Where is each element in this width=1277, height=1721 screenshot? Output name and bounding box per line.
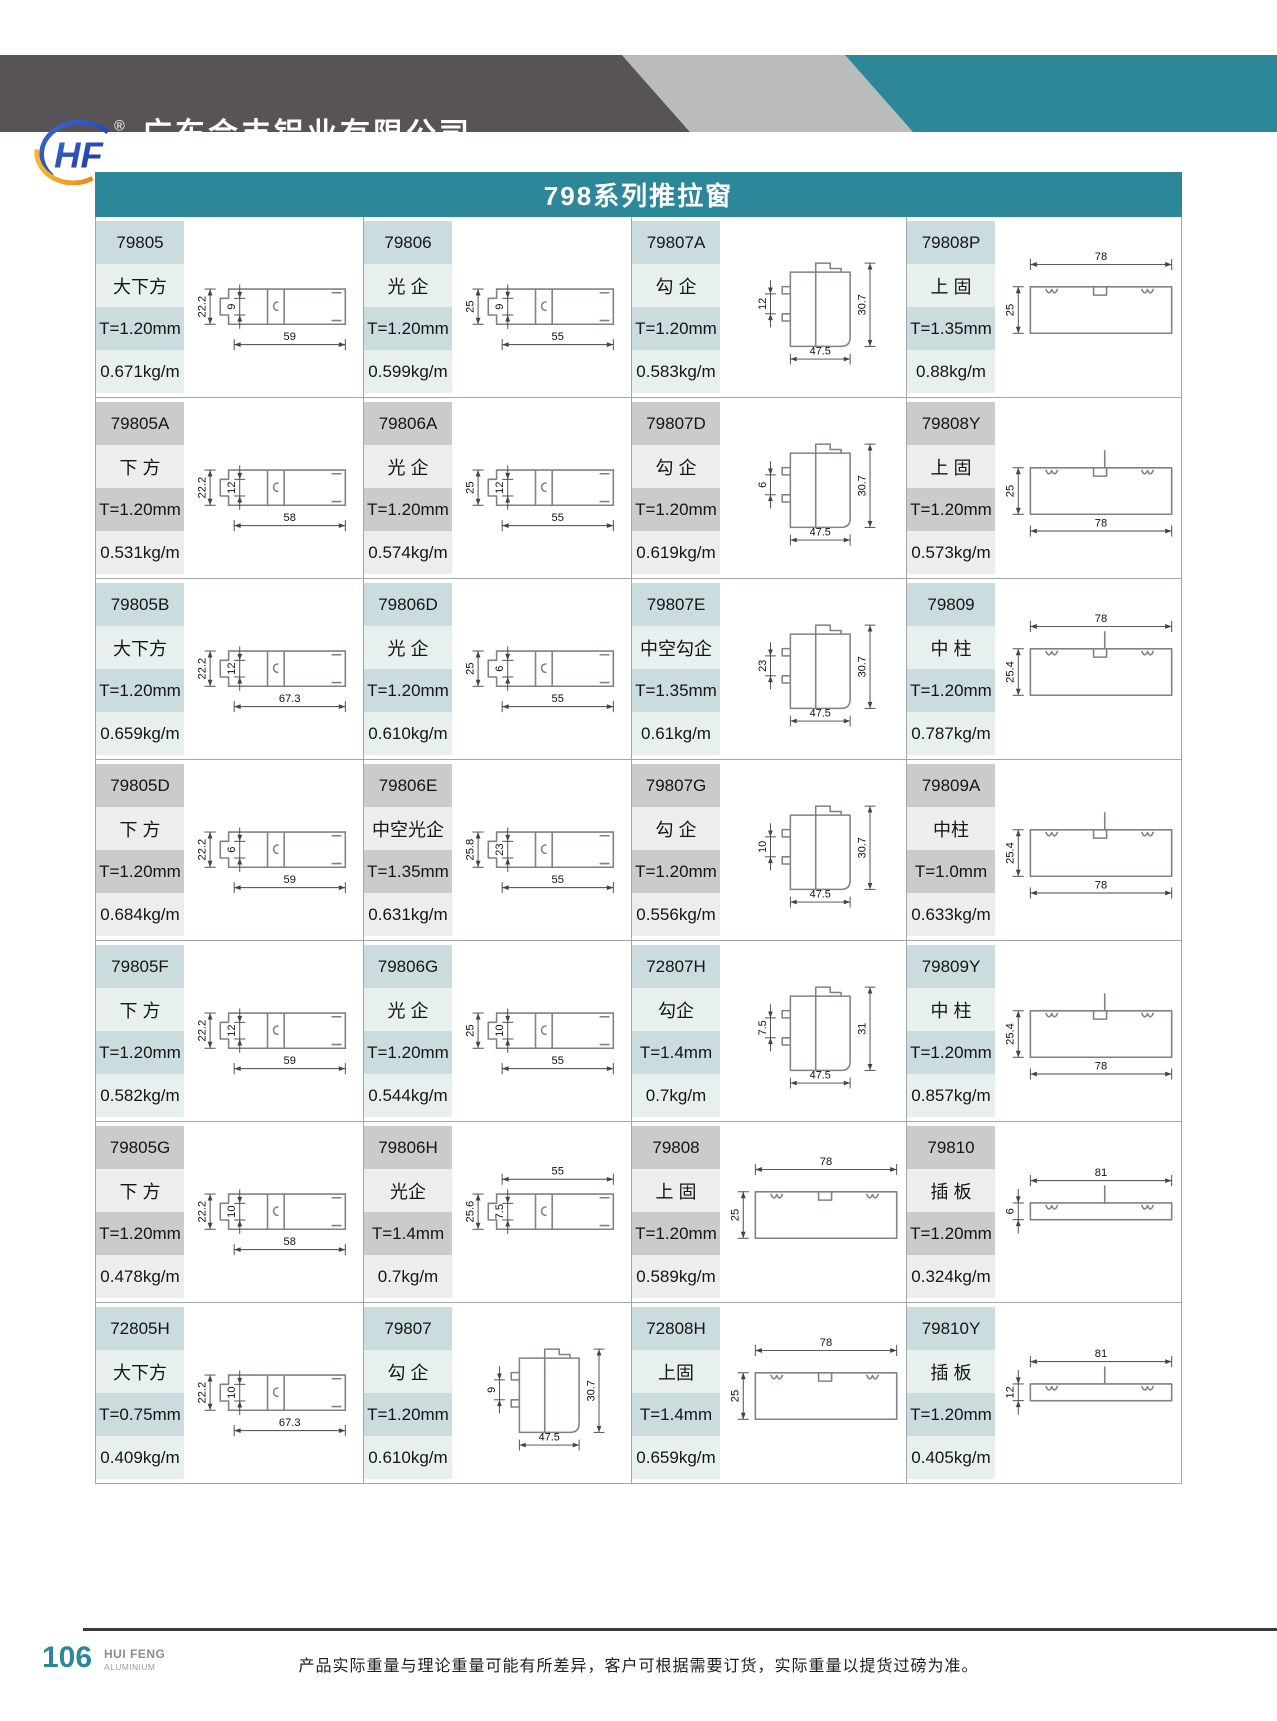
svg-text:12: 12 [226,482,238,494]
product-code: 79810 [907,1126,995,1169]
product-code: 79805B [96,583,184,626]
svg-text:30.7: 30.7 [585,1381,597,1402]
product-thickness: T=1.20mm [96,307,184,350]
product-label-stack: 79807A 勾 企 T=1.20mm 0.583kg/m [632,217,720,397]
svg-text:7.5: 7.5 [494,1204,506,1219]
company-name-cn: 广东会丰铝业有限公司 [142,118,472,152]
product-label-stack: 79805A 下 方 T=1.20mm 0.531kg/m [96,398,184,578]
product-name: 勾 企 [632,264,720,307]
product-cell: 72807H 勾企 T=1.4mm 0.7kg/m 7.53147.5 [632,941,907,1122]
svg-text:58: 58 [283,512,295,524]
svg-text:55: 55 [551,874,563,886]
svg-text:6: 6 [1005,1208,1017,1214]
profile-drawing: 7825 [995,398,1181,578]
product-code: 79808P [907,221,995,264]
product-cell: 79809 中 柱 T=1.20mm 0.787kg/m 7825.4 [907,579,1181,760]
product-name: 勾 企 [632,445,720,488]
profile-drawing: 251255 [452,398,631,578]
profile-drawing: 7825.4 [995,941,1181,1121]
product-name: 光 企 [364,988,452,1031]
product-code: 79807E [632,583,720,626]
product-name: 下 方 [96,445,184,488]
product-code: 79806 [364,221,452,264]
product-label-stack: 79808 上 固 T=1.20mm 0.589kg/m [632,1122,720,1302]
svg-text:25: 25 [730,1209,742,1221]
product-cell: 79806D 光 企 T=1.20mm 0.610kg/m 25655 [364,579,632,760]
product-weight: 0.478kg/m [96,1255,184,1298]
product-code: 79809A [907,764,995,807]
product-thickness: T=0.75mm [96,1393,184,1436]
product-label-stack: 79806H 光企 T=1.4mm 0.7kg/m [364,1122,452,1302]
svg-text:25: 25 [1005,304,1017,316]
product-name: 勾企 [632,988,720,1031]
svg-text:47.5: 47.5 [538,1432,559,1444]
product-weight: 0.61kg/m [632,712,720,755]
header-band-teal-segment [845,55,1277,132]
product-weight: 0.7kg/m [632,1074,720,1117]
product-thickness: T=1.4mm [632,1393,720,1436]
product-thickness: T=1.20mm [907,1393,995,1436]
product-weight: 0.88kg/m [907,350,995,393]
svg-text:7.5: 7.5 [757,1021,769,1036]
svg-text:22.2: 22.2 [196,477,208,499]
profile-drawing: 22.2959 [184,217,363,397]
product-name: 插 板 [907,1169,995,1212]
svg-text:59: 59 [283,874,295,886]
profile-cross-section-drawing: 22.21259 [186,976,362,1085]
svg-text:22.2: 22.2 [196,1020,208,1042]
product-cell: 79805 大下方 T=1.20mm 0.671kg/m 22.2959 [96,217,364,398]
profile-cross-section-drawing: 630.747.5 [727,426,899,549]
svg-text:78: 78 [820,1337,832,1349]
product-cell: 79805D 下 方 T=1.20mm 0.684kg/m 22.2659 [96,760,364,941]
svg-text:58: 58 [283,1236,295,1248]
product-name: 上固 [632,1350,720,1393]
product-code: 72808H [632,1307,720,1350]
product-label-stack: 79805B 大下方 T=1.20mm 0.659kg/m [96,579,184,759]
product-label-stack: 79806 光 企 T=1.20mm 0.599kg/m [364,217,452,397]
profile-cross-section-drawing: 22.21258 [186,433,362,542]
product-weight: 0.544kg/m [364,1074,452,1117]
product-label-stack: 79810 插 板 T=1.20mm 0.324kg/m [907,1122,995,1302]
product-code: 79805A [96,402,184,445]
product-code: 79806D [364,583,452,626]
svg-text:55: 55 [551,1055,563,1067]
product-label-stack: 79807G 勾 企 T=1.20mm 0.556kg/m [632,760,720,940]
product-thickness: T=1.20mm [907,669,995,712]
profile-drawing: 25.82355 [452,760,631,940]
svg-text:78: 78 [1095,251,1107,263]
profile-cross-section-drawing: 1030.747.5 [727,788,899,911]
profile-drawing: 816 [995,1122,1181,1302]
svg-text:78: 78 [1095,879,1107,891]
product-code: 79806H [364,1126,452,1169]
product-thickness: T=1.20mm [96,850,184,893]
svg-text:25: 25 [464,301,476,313]
product-code: 79805F [96,945,184,988]
company-name-block: 广东会丰铝业有限公司 GUANGDONG HUIFENG ALUMINIUM.,… [142,118,472,170]
svg-text:55: 55 [551,512,563,524]
product-cell: 79806G 光 企 T=1.20mm 0.544kg/m 251055 [364,941,632,1122]
svg-text:81: 81 [1095,1348,1107,1360]
product-code: 72807H [632,945,720,988]
product-name: 插 板 [907,1350,995,1393]
product-thickness: T=1.20mm [96,1212,184,1255]
product-label-stack: 79807 勾 企 T=1.20mm 0.610kg/m [364,1303,452,1483]
svg-text:81: 81 [1095,1167,1107,1179]
product-thickness: T=1.0mm [907,850,995,893]
product-thickness: T=1.35mm [907,307,995,350]
product-thickness: T=1.4mm [632,1031,720,1074]
svg-text:10: 10 [226,1387,238,1399]
product-cell: 79806H 光企 T=1.4mm 0.7kg/m 25.67.555 [364,1122,632,1303]
product-code: 79809Y [907,945,995,988]
profile-cross-section-drawing: 7.53147.5 [727,969,899,1092]
svg-text:67.3: 67.3 [278,1417,300,1429]
svg-text:25: 25 [464,482,476,494]
profile-drawing: 25955 [452,217,631,397]
profile-drawing: 25655 [452,579,631,759]
profile-cross-section-drawing: 7825.4 [995,787,1181,913]
svg-text:25: 25 [730,1390,742,1402]
profile-drawing: 22.21267.3 [184,579,363,759]
product-label-stack: 79807D 勾 企 T=1.20mm 0.619kg/m [632,398,720,578]
product-thickness: T=1.20mm [364,307,452,350]
product-name: 大下方 [96,1350,184,1393]
svg-text:59: 59 [283,1055,295,1067]
product-name: 光 企 [364,264,452,307]
profile-cross-section-drawing: 25.67.555 [454,1157,630,1266]
svg-text:12: 12 [226,663,238,675]
svg-text:78: 78 [820,1156,832,1168]
product-name: 光企 [364,1169,452,1212]
product-label-stack: 79806E 中空光企 T=1.35mm 0.631kg/m [364,760,452,940]
product-cell: 79807A 勾 企 T=1.20mm 0.583kg/m 1230.747.5 [632,217,907,398]
product-label-stack: 79805F 下 方 T=1.20mm 0.582kg/m [96,941,184,1121]
product-thickness: T=1.20mm [907,488,995,531]
svg-text:30.7: 30.7 [857,476,869,497]
product-thickness: T=1.20mm [364,1031,452,1074]
profile-drawing: 7825.4 [995,579,1181,759]
product-label-stack: 79806A 光 企 T=1.20mm 0.574kg/m [364,398,452,578]
product-thickness: T=1.35mm [364,850,452,893]
product-label-stack: 72807H 勾企 T=1.4mm 0.7kg/m [632,941,720,1121]
profile-drawing: 7825 [995,217,1181,397]
product-code: 79809 [907,583,995,626]
svg-text:22.2: 22.2 [196,1201,208,1223]
svg-text:55: 55 [551,331,563,343]
profile-cross-section-drawing: 7825 [720,1149,906,1275]
product-weight: 0.659kg/m [96,712,184,755]
product-cell: 79805F 下 方 T=1.20mm 0.582kg/m 22.21259 [96,941,364,1122]
svg-text:25.4: 25.4 [1005,661,1017,683]
product-weight: 0.610kg/m [364,1436,452,1479]
catalog-table: 798系列推拉窗 79805 大下方 T=1.20mm 0.671kg/m 22… [95,172,1182,1484]
product-code: 79805G [96,1126,184,1169]
product-code: 79808 [632,1126,720,1169]
svg-text:25.4: 25.4 [1005,842,1017,864]
product-thickness: T=1.20mm [364,488,452,531]
profile-cross-section-drawing: 22.2959 [186,252,362,361]
svg-text:78: 78 [1095,613,1107,625]
svg-text:25: 25 [1005,485,1017,497]
product-thickness: T=1.20mm [632,307,720,350]
profile-drawing: 8112 [995,1303,1181,1483]
product-weight: 0.573kg/m [907,531,995,574]
svg-text:9: 9 [226,304,238,310]
product-label-stack: 79808Y 上 固 T=1.20mm 0.573kg/m [907,398,995,578]
profile-drawing: 930.747.5 [452,1303,631,1483]
product-name: 上 固 [632,1169,720,1212]
product-weight: 0.405kg/m [907,1436,995,1479]
product-weight: 0.659kg/m [632,1436,720,1479]
registered-mark: ® [114,118,125,134]
product-cell: 79806A 光 企 T=1.20mm 0.574kg/m 251255 [364,398,632,579]
svg-text:25.6: 25.6 [464,1201,476,1223]
product-code: 79806G [364,945,452,988]
product-cell: 79810Y 插 板 T=1.20mm 0.405kg/m 8112 [907,1303,1181,1483]
product-label-stack: 79810Y 插 板 T=1.20mm 0.405kg/m [907,1303,995,1483]
product-weight: 0.574kg/m [364,531,452,574]
profile-drawing: 22.2659 [184,760,363,940]
product-label-stack: 79806G 光 企 T=1.20mm 0.544kg/m [364,941,452,1121]
profile-cross-section-drawing: 7825.4 [995,968,1181,1094]
product-cell: 79807D 勾 企 T=1.20mm 0.619kg/m 630.747.5 [632,398,907,579]
product-cell: 79810 插 板 T=1.20mm 0.324kg/m 816 [907,1122,1181,1303]
product-thickness: T=1.20mm [364,669,452,712]
product-name: 光 企 [364,626,452,669]
product-weight: 0.671kg/m [96,350,184,393]
product-cell: 79809A 中柱 T=1.0mm 0.633kg/m 7825.4 [907,760,1181,941]
product-weight: 0.589kg/m [632,1255,720,1298]
svg-text:6: 6 [226,847,238,853]
product-thickness: T=1.4mm [364,1212,452,1255]
svg-text:25: 25 [464,1025,476,1037]
product-cell: 72808H 上固 T=1.4mm 0.659kg/m 7825 [632,1303,907,1483]
product-name: 下 方 [96,807,184,850]
product-code: 79810Y [907,1307,995,1350]
product-code: 72805H [96,1307,184,1350]
product-code: 79807A [632,221,720,264]
svg-text:12: 12 [494,482,506,494]
product-weight: 0.631kg/m [364,893,452,936]
profile-cross-section-drawing: 2330.747.5 [727,607,899,730]
product-name: 光 企 [364,445,452,488]
profile-cross-section-drawing: 7825 [720,1330,906,1456]
profile-cross-section-drawing: 816 [995,1149,1181,1275]
product-label-stack: 79807E 中空勾企 T=1.35mm 0.61kg/m [632,579,720,759]
svg-text:6: 6 [494,666,506,672]
profile-drawing: 7825.4 [995,760,1181,940]
svg-text:23: 23 [757,660,769,672]
svg-text:25.8: 25.8 [464,839,476,861]
product-weight: 0.619kg/m [632,531,720,574]
profile-cross-section-drawing: 22.21267.3 [186,614,362,723]
svg-text:22.2: 22.2 [196,658,208,680]
product-name: 下 方 [96,1169,184,1212]
product-label-stack: 72805H 大下方 T=0.75mm 0.409kg/m [96,1303,184,1483]
profile-drawing: 22.21259 [184,941,363,1121]
svg-text:12: 12 [1005,1386,1017,1398]
product-cell: 79808 上 固 T=1.20mm 0.589kg/m 7825 [632,1122,907,1303]
product-name: 中空光企 [364,807,452,850]
profile-cross-section-drawing: 7825 [995,244,1181,370]
product-name: 下 方 [96,988,184,1031]
svg-text:12: 12 [226,1025,238,1037]
profile-cross-section-drawing: 25.82355 [454,795,630,904]
product-weight: 0.599kg/m [364,350,452,393]
product-weight: 0.610kg/m [364,712,452,755]
product-label-stack: 79805 大下方 T=1.20mm 0.671kg/m [96,217,184,397]
svg-text:10: 10 [494,1025,506,1037]
product-code: 79807G [632,764,720,807]
product-name: 大下方 [96,626,184,669]
product-label-stack: 72808H 上固 T=1.4mm 0.659kg/m [632,1303,720,1483]
profile-drawing: 630.747.5 [720,398,906,578]
svg-text:47.5: 47.5 [810,346,831,358]
product-weight: 0.531kg/m [96,531,184,574]
profile-drawing: 25.67.555 [452,1122,631,1302]
product-grid: 79805 大下方 T=1.20mm 0.671kg/m 22.2959 798… [95,217,1182,1484]
product-weight: 0.324kg/m [907,1255,995,1298]
product-cell: 79805A 下 方 T=1.20mm 0.531kg/m 22.21258 [96,398,364,579]
product-cell: 79805B 大下方 T=1.20mm 0.659kg/m 22.21267.3 [96,579,364,760]
product-cell: 79809Y 中 柱 T=1.20mm 0.857kg/m 7825.4 [907,941,1181,1122]
svg-text:78: 78 [1095,1060,1107,1072]
product-name: 中空勾企 [632,626,720,669]
svg-text:22.2: 22.2 [196,1382,208,1404]
svg-text:10: 10 [226,1206,238,1218]
profile-drawing: 1030.747.5 [720,760,906,940]
profile-drawing: 1230.747.5 [720,217,906,397]
profile-cross-section-drawing: 251055 [454,976,630,1085]
profile-cross-section-drawing: 25955 [454,252,630,361]
svg-text:47.5: 47.5 [810,527,831,539]
product-weight: 0.409kg/m [96,1436,184,1479]
profile-cross-section-drawing: 8112 [995,1330,1181,1456]
svg-text:22.2: 22.2 [196,839,208,861]
svg-text:59: 59 [283,331,295,343]
profile-drawing: 7825 [720,1122,906,1302]
footer-note: 产品实际重量与理论重量可能有所差异，客户可根据需要订货，实际重量以提货过磅为准。 [0,1652,1277,1676]
product-cell: 79806 光 企 T=1.20mm 0.599kg/m 25955 [364,217,632,398]
svg-text:25.4: 25.4 [1005,1023,1017,1045]
product-code: 79807 [364,1307,452,1350]
svg-text:23: 23 [494,844,506,856]
svg-text:55: 55 [551,693,563,705]
svg-text:67.3: 67.3 [278,693,300,705]
svg-text:78: 78 [1095,517,1107,529]
product-cell: 79808P 上 固 T=1.35mm 0.88kg/m 7825 [907,217,1181,398]
product-cell: 79806E 中空光企 T=1.35mm 0.631kg/m 25.82355 [364,760,632,941]
product-name: 勾 企 [632,807,720,850]
product-label-stack: 79809 中 柱 T=1.20mm 0.787kg/m [907,579,995,759]
svg-text:47.5: 47.5 [810,708,831,720]
svg-text:47.5: 47.5 [810,889,831,901]
product-thickness: T=1.20mm [96,488,184,531]
product-label-stack: 79805G 下 方 T=1.20mm 0.478kg/m [96,1122,184,1302]
product-weight: 0.582kg/m [96,1074,184,1117]
product-thickness: T=1.20mm [907,1212,995,1255]
svg-text:30.7: 30.7 [857,838,869,859]
product-code: 79806E [364,764,452,807]
profile-cross-section-drawing: 930.747.5 [456,1331,628,1454]
profile-drawing: 2330.747.5 [720,579,906,759]
product-thickness: T=1.20mm [632,850,720,893]
svg-text:25: 25 [464,663,476,675]
logo-monogram: HF [54,135,104,176]
product-thickness: T=1.20mm [96,669,184,712]
svg-text:31: 31 [857,1023,869,1035]
profile-drawing: 7.53147.5 [720,941,906,1121]
footer-divider [83,1628,1277,1631]
product-weight: 0.583kg/m [632,350,720,393]
profile-cross-section-drawing: 22.2659 [186,795,362,904]
company-name-en: GUANGDONG HUIFENG ALUMINIUM.,LTD. [142,154,472,170]
profile-cross-section-drawing: 1230.747.5 [727,245,899,368]
product-name: 勾 企 [364,1350,452,1393]
profile-drawing: 22.21258 [184,398,363,578]
product-code: 79805 [96,221,184,264]
svg-text:12: 12 [757,298,769,310]
product-label-stack: 79806D 光 企 T=1.20mm 0.610kg/m [364,579,452,759]
product-name: 上 固 [907,264,995,307]
product-code: 79806A [364,402,452,445]
product-cell: 79807E 中空勾企 T=1.35mm 0.61kg/m 2330.747.5 [632,579,907,760]
profile-drawing: 7825 [720,1303,906,1483]
product-cell: 79807G 勾 企 T=1.20mm 0.556kg/m 1030.747.5 [632,760,907,941]
profile-drawing: 251055 [452,941,631,1121]
product-label-stack: 79809Y 中 柱 T=1.20mm 0.857kg/m [907,941,995,1121]
product-weight: 0.633kg/m [907,893,995,936]
product-cell: 79807 勾 企 T=1.20mm 0.610kg/m 930.747.5 [364,1303,632,1483]
product-label-stack: 79808P 上 固 T=1.35mm 0.88kg/m [907,217,995,397]
profile-cross-section-drawing: 22.21058 [186,1157,362,1266]
product-weight: 0.556kg/m [632,893,720,936]
svg-text:9: 9 [494,304,506,310]
product-thickness: T=1.20mm [632,1212,720,1255]
product-thickness: T=1.20mm [632,488,720,531]
product-cell: 72805H 大下方 T=0.75mm 0.409kg/m 22.21067.3 [96,1303,364,1483]
product-label-stack: 79809A 中柱 T=1.0mm 0.633kg/m [907,760,995,940]
svg-text:9: 9 [485,1387,497,1393]
svg-text:22.2: 22.2 [196,296,208,318]
profile-drawing: 22.21067.3 [184,1303,363,1483]
product-thickness: T=1.20mm [96,1031,184,1074]
series-title: 798系列推拉窗 [95,172,1182,217]
product-weight: 0.684kg/m [96,893,184,936]
svg-text:55: 55 [551,1166,563,1178]
product-thickness: T=1.35mm [632,669,720,712]
profile-cross-section-drawing: 7825 [995,425,1181,551]
product-label-stack: 79805D 下 方 T=1.20mm 0.684kg/m [96,760,184,940]
profile-cross-section-drawing: 25655 [454,614,630,723]
product-weight: 0.7kg/m [364,1255,452,1298]
product-cell: 79808Y 上 固 T=1.20mm 0.573kg/m 7825 [907,398,1181,579]
profile-cross-section-drawing: 251255 [454,433,630,542]
product-code: 79808Y [907,402,995,445]
svg-text:6: 6 [757,482,769,488]
svg-text:47.5: 47.5 [810,1070,831,1082]
product-weight: 0.787kg/m [907,712,995,755]
profile-cross-section-drawing: 22.21067.3 [186,1338,362,1447]
product-name: 大下方 [96,264,184,307]
header-band: HF ® 广东会丰铝业有限公司 GUANGDONG HUIFENG ALUMIN… [0,55,1277,132]
product-cell: 79805G 下 方 T=1.20mm 0.478kg/m 22.21058 [96,1122,364,1303]
product-name: 上 固 [907,445,995,488]
product-weight: 0.857kg/m [907,1074,995,1117]
product-code: 79807D [632,402,720,445]
